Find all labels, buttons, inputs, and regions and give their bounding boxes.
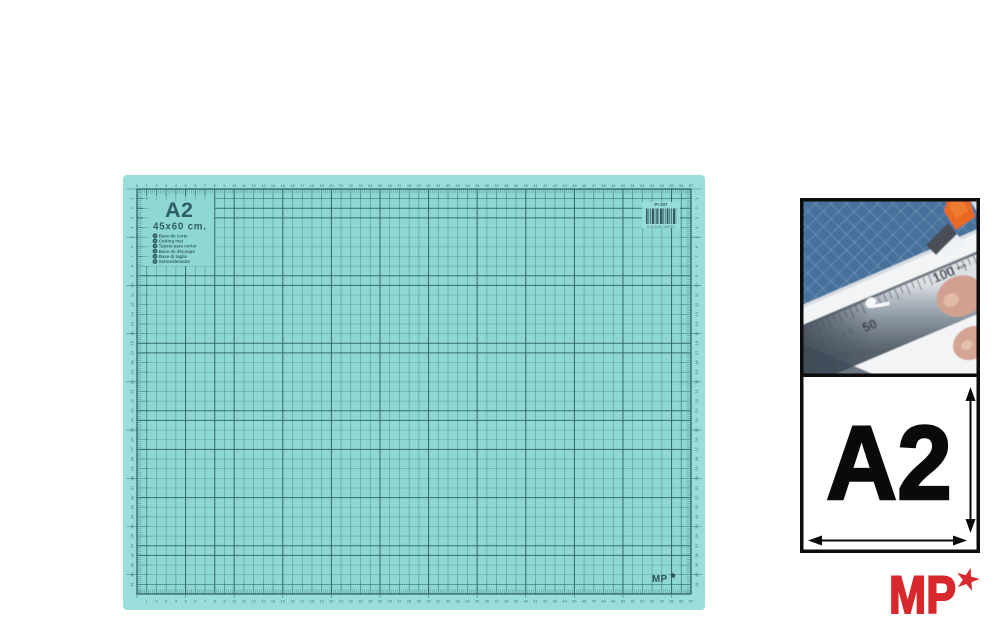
svg-text:40: 40	[524, 183, 529, 188]
svg-text:16: 16	[694, 340, 699, 345]
svg-text:30: 30	[426, 599, 431, 604]
svg-text:13: 13	[694, 311, 699, 316]
svg-text:20: 20	[329, 183, 334, 188]
svg-text:21: 21	[694, 389, 699, 394]
svg-text:21: 21	[339, 599, 344, 604]
svg-text:16: 16	[130, 340, 135, 345]
svg-text:10: 10	[694, 282, 699, 287]
svg-text:32: 32	[446, 599, 451, 604]
svg-text:41: 41	[130, 581, 135, 586]
svg-text:27: 27	[397, 183, 402, 188]
svg-text:MP: MP	[652, 574, 667, 585]
svg-text:29: 29	[130, 466, 135, 471]
svg-text:43: 43	[553, 183, 558, 188]
svg-text:24: 24	[130, 417, 135, 422]
svg-text:37: 37	[494, 183, 499, 188]
svg-text:43: 43	[553, 599, 558, 604]
svg-text:23: 23	[130, 408, 135, 413]
svg-text:22: 22	[349, 599, 354, 604]
svg-text:12: 12	[694, 302, 699, 307]
svg-text:27: 27	[130, 446, 135, 451]
svg-text:15: 15	[694, 331, 699, 336]
svg-text:49: 49	[611, 183, 616, 188]
svg-text:35: 35	[475, 599, 480, 604]
svg-text:22: 22	[349, 183, 354, 188]
svg-text:45x60 cm.: 45x60 cm.	[153, 221, 206, 232]
svg-text:26: 26	[387, 599, 392, 604]
svg-text:38: 38	[130, 552, 135, 557]
svg-text:14: 14	[130, 321, 135, 326]
svg-text:56: 56	[679, 599, 684, 604]
svg-text:22: 22	[130, 398, 135, 403]
svg-text:51: 51	[630, 183, 635, 188]
svg-text:28: 28	[130, 456, 135, 461]
svg-text:17: 17	[300, 599, 305, 604]
svg-text:55: 55	[669, 183, 674, 188]
svg-text:25: 25	[378, 599, 383, 604]
svg-text:53: 53	[650, 183, 655, 188]
svg-text:36: 36	[485, 599, 490, 604]
svg-text:53: 53	[650, 599, 655, 604]
svg-text:27: 27	[694, 446, 699, 451]
svg-text:44: 44	[562, 599, 567, 604]
svg-text:37: 37	[130, 543, 135, 548]
svg-text:33: 33	[130, 504, 135, 509]
svg-text:41: 41	[694, 581, 699, 586]
svg-text:25: 25	[378, 183, 383, 188]
svg-text:17: 17	[130, 350, 135, 355]
svg-text:38: 38	[694, 552, 699, 557]
svg-text:30: 30	[130, 475, 135, 480]
svg-text:25: 25	[694, 427, 699, 432]
svg-text:38: 38	[504, 183, 509, 188]
svg-text:51: 51	[630, 599, 635, 604]
svg-text:34: 34	[465, 183, 470, 188]
svg-text:33: 33	[694, 504, 699, 509]
svg-text:29: 29	[417, 183, 422, 188]
svg-text:32: 32	[446, 183, 451, 188]
svg-text:45: 45	[572, 183, 577, 188]
svg-text:14: 14	[271, 183, 276, 188]
svg-text:26: 26	[130, 437, 135, 442]
svg-text:28: 28	[407, 599, 412, 604]
svg-text:18: 18	[694, 360, 699, 365]
svg-text:45: 45	[572, 599, 577, 604]
svg-text:10: 10	[130, 282, 135, 287]
svg-text:34: 34	[465, 599, 470, 604]
svg-text:23: 23	[694, 408, 699, 413]
svg-text:31: 31	[436, 183, 441, 188]
svg-text:13: 13	[130, 311, 135, 316]
svg-text:24: 24	[694, 417, 699, 422]
svg-text:13: 13	[261, 599, 266, 604]
svg-text:MP: MP	[889, 566, 956, 625]
svg-text:39: 39	[514, 599, 519, 604]
svg-text:47: 47	[592, 599, 597, 604]
svg-text:44: 44	[562, 183, 567, 188]
svg-text:18: 18	[310, 183, 315, 188]
svg-text:31: 31	[694, 485, 699, 490]
svg-text:10: 10	[232, 183, 237, 188]
svg-text:50: 50	[621, 599, 626, 604]
svg-text:14: 14	[694, 321, 699, 326]
svg-text:25: 25	[130, 427, 135, 432]
svg-text:36: 36	[485, 183, 490, 188]
svg-text:50: 50	[621, 183, 626, 188]
svg-text:15: 15	[130, 331, 135, 336]
svg-text:8 413240 159704: 8 413240 159704	[647, 225, 675, 229]
svg-text:PI 307: PI 307	[654, 202, 668, 207]
svg-text:28: 28	[694, 456, 699, 461]
svg-text:37: 37	[494, 599, 499, 604]
svg-text:54: 54	[660, 183, 665, 188]
svg-text:17: 17	[300, 183, 305, 188]
svg-text:20: 20	[130, 379, 135, 384]
svg-text:12: 12	[130, 302, 135, 307]
svg-text:36: 36	[694, 533, 699, 538]
svg-text:20: 20	[694, 379, 699, 384]
svg-text:48: 48	[601, 599, 606, 604]
svg-text:28: 28	[407, 183, 412, 188]
svg-text:32: 32	[130, 495, 135, 500]
svg-text:19: 19	[319, 599, 324, 604]
svg-text:55: 55	[669, 599, 674, 604]
svg-text:41: 41	[533, 183, 538, 188]
svg-text:19: 19	[319, 183, 324, 188]
svg-text:26: 26	[694, 437, 699, 442]
svg-text:21: 21	[339, 183, 344, 188]
svg-text:39: 39	[694, 562, 699, 567]
svg-text:14: 14	[271, 599, 276, 604]
svg-text:41: 41	[533, 599, 538, 604]
svg-text:24: 24	[368, 183, 373, 188]
svg-text:13: 13	[261, 183, 266, 188]
svg-text:19: 19	[130, 369, 135, 374]
svg-text:23: 23	[358, 183, 363, 188]
svg-text:29: 29	[694, 466, 699, 471]
svg-text:20: 20	[329, 599, 334, 604]
svg-text:56: 56	[679, 183, 684, 188]
svg-text:36: 36	[130, 533, 135, 538]
svg-text:Schneidematte: Schneidematte	[159, 259, 191, 264]
svg-text:40: 40	[524, 599, 529, 604]
svg-text:16: 16	[290, 599, 295, 604]
svg-text:16: 16	[290, 183, 295, 188]
svg-text:35: 35	[694, 524, 699, 529]
svg-text:30: 30	[694, 475, 699, 480]
svg-text:32: 32	[694, 495, 699, 500]
svg-text:18: 18	[130, 360, 135, 365]
svg-text:22: 22	[694, 398, 699, 403]
svg-text:35: 35	[130, 524, 135, 529]
svg-text:35: 35	[475, 183, 480, 188]
svg-text:26: 26	[387, 183, 392, 188]
svg-text:A2: A2	[826, 405, 952, 522]
svg-text:42: 42	[543, 183, 548, 188]
svg-text:24: 24	[368, 599, 373, 604]
svg-text:19: 19	[694, 369, 699, 374]
svg-text:27: 27	[397, 599, 402, 604]
svg-text:A2: A2	[165, 198, 193, 222]
svg-text:15: 15	[281, 183, 286, 188]
svg-text:18: 18	[310, 599, 315, 604]
svg-text:21: 21	[130, 389, 135, 394]
svg-text:54: 54	[660, 599, 665, 604]
svg-text:10: 10	[232, 599, 237, 604]
svg-text:49: 49	[611, 599, 616, 604]
svg-text:15: 15	[281, 599, 286, 604]
svg-text:57: 57	[689, 183, 694, 188]
svg-text:37: 37	[694, 543, 699, 548]
svg-text:38: 38	[504, 599, 509, 604]
svg-text:52: 52	[640, 183, 645, 188]
svg-text:47: 47	[592, 183, 597, 188]
svg-text:39: 39	[514, 183, 519, 188]
svg-text:33: 33	[456, 599, 461, 604]
svg-text:42: 42	[543, 599, 548, 604]
svg-text:57: 57	[689, 599, 694, 604]
svg-text:12: 12	[251, 183, 256, 188]
svg-text:52: 52	[640, 599, 645, 604]
svg-text:23: 23	[358, 599, 363, 604]
svg-text:34: 34	[130, 514, 135, 519]
svg-text:12: 12	[251, 599, 256, 604]
svg-text:30: 30	[426, 183, 431, 188]
svg-text:39: 39	[130, 562, 135, 567]
svg-text:46: 46	[582, 183, 587, 188]
svg-text:40: 40	[694, 572, 699, 577]
svg-text:48: 48	[601, 183, 606, 188]
svg-text:31: 31	[130, 485, 135, 490]
svg-text:40: 40	[130, 572, 135, 577]
svg-text:17: 17	[694, 350, 699, 355]
svg-text:34: 34	[694, 514, 699, 519]
svg-text:31: 31	[436, 599, 441, 604]
svg-text:29: 29	[417, 599, 422, 604]
svg-text:46: 46	[582, 599, 587, 604]
svg-text:33: 33	[456, 183, 461, 188]
